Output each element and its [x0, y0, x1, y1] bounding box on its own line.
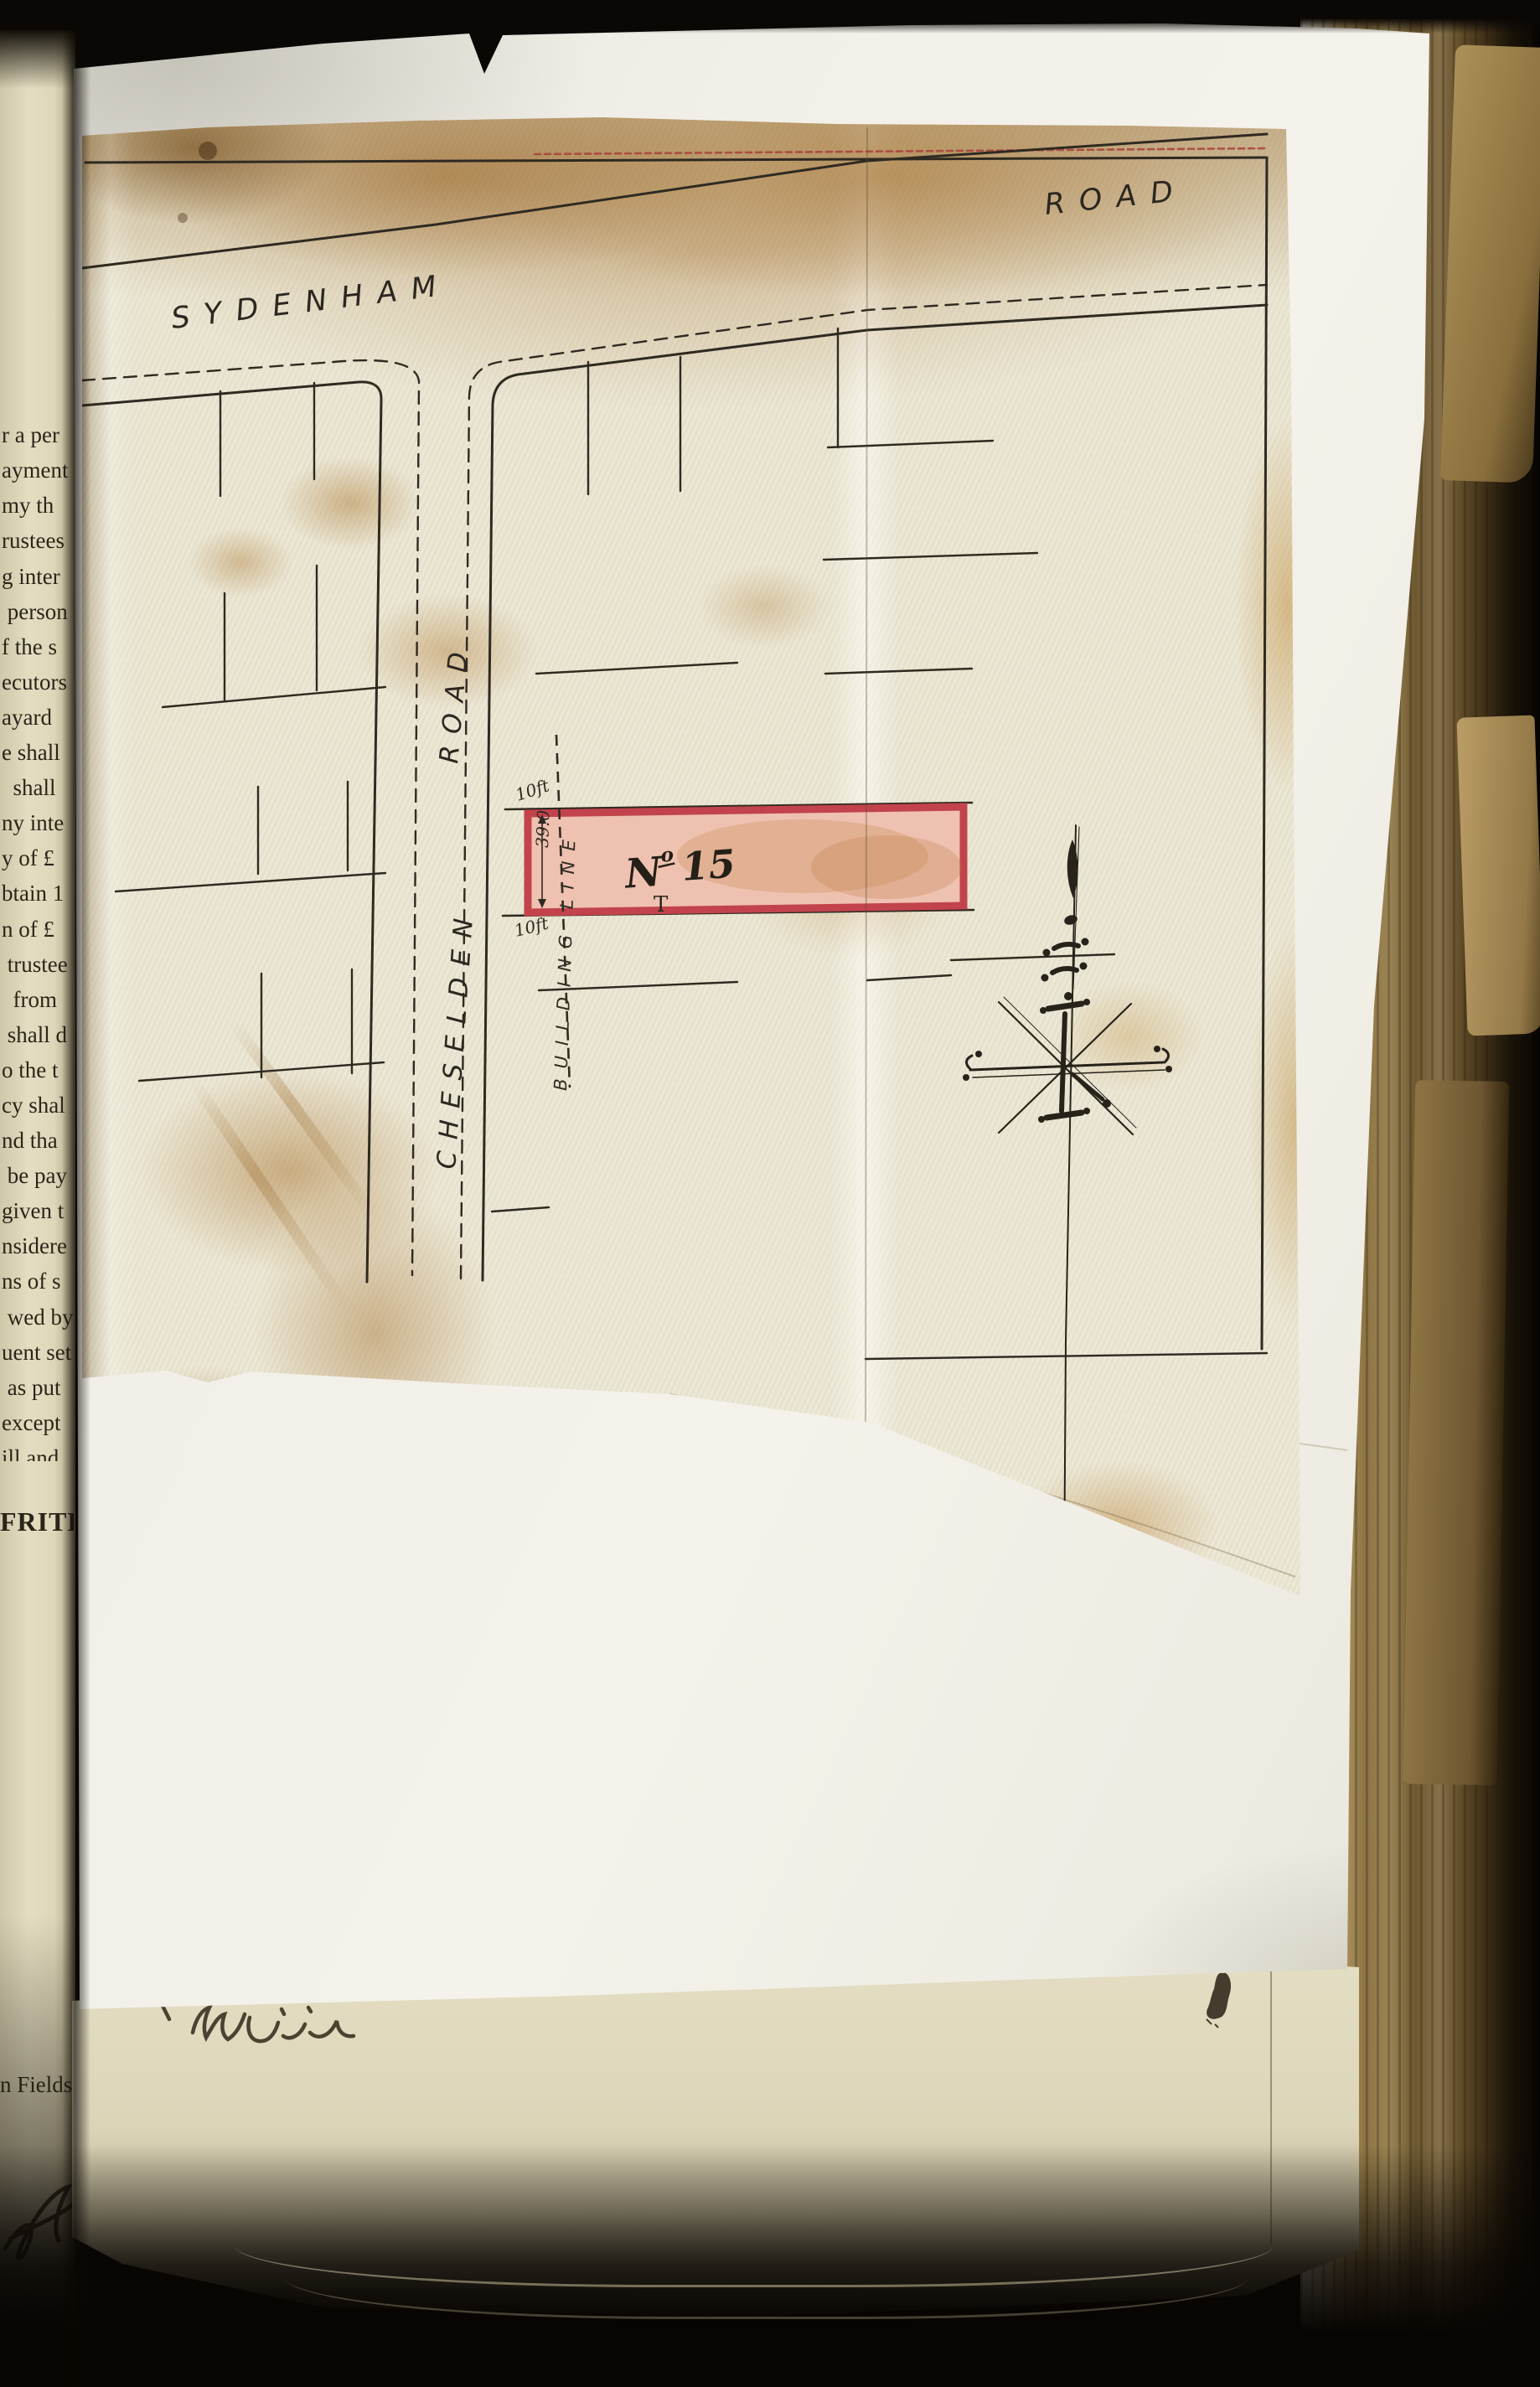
plan-border-red-dashes — [535, 148, 1267, 154]
text-line: shall — [2, 770, 56, 805]
cheselden-road-label-suffix: ROAD — [434, 639, 475, 765]
text-line: e shall — [2, 735, 60, 770]
cheselden-road-label: CHESELDEN — [432, 906, 480, 1170]
sydenham-road-label-suffix: ROAD — [1043, 173, 1189, 222]
sydenham-road-label: SYDENHAM — [169, 268, 452, 336]
gutter-shadow — [62, 0, 90, 2387]
text-line: ayment — [2, 452, 68, 488]
text-line: ecutors — [2, 664, 67, 700]
sydenham-building-line-east — [461, 285, 1267, 1279]
text-line: nsidere — [2, 1228, 67, 1263]
plot15-stain — [811, 835, 962, 899]
text-line: trustee — [2, 947, 68, 982]
text-line: ill and — [2, 1440, 59, 1461]
text-line: cy shal — [2, 1088, 65, 1123]
ink-blot — [1202, 1969, 1243, 2036]
text-line: ns of s — [2, 1263, 61, 1299]
text-line: shall d — [2, 1017, 67, 1052]
dark-spot — [199, 142, 217, 160]
plot-division-lines-west — [116, 383, 385, 1081]
text-line: o the t — [2, 1052, 59, 1088]
text-line: my th — [2, 488, 54, 523]
svg-text:15: 15 — [680, 840, 737, 889]
text-line: from — [2, 982, 57, 1017]
text-line: r a per — [2, 417, 59, 452]
dark-spot — [178, 213, 188, 223]
plan-border-top — [85, 158, 1267, 163]
text-line: as put — [2, 1370, 61, 1405]
text-line: nd tha — [2, 1123, 58, 1158]
handwriting-will — [156, 1994, 374, 2078]
compass-north-arrow — [963, 825, 1172, 1586]
torn-page-flap — [1440, 44, 1540, 483]
tee-mark: T — [654, 892, 669, 917]
text-line: uent set — [2, 1335, 71, 1370]
text-line: except — [2, 1405, 60, 1440]
frontage-label-bottom: 10ft — [512, 912, 550, 940]
fore-edge-arc — [285, 2235, 1248, 2319]
top-shadow — [0, 0, 1540, 34]
fold-crease — [866, 127, 867, 1423]
torn-page-flap — [1403, 1080, 1510, 1785]
text-line: person — [2, 594, 68, 629]
text-line: ayard — [2, 700, 52, 735]
frontage-east-of-cheselden — [483, 305, 1267, 1280]
svg-text:N: N — [622, 848, 665, 897]
depth-label: 39:0 — [532, 809, 554, 848]
text-line: given t — [2, 1193, 64, 1228]
text-line: btain 1 — [2, 876, 64, 911]
text-line: f the s — [2, 629, 57, 664]
torn-page-flap — [1456, 715, 1540, 1036]
frontage-label-top: 10ft — [513, 775, 552, 805]
archive-book-photograph: r a per ayment my th rustees g inter per… — [0, 0, 1540, 2387]
text-line: rustees — [2, 523, 65, 558]
text-line: y of £ — [2, 840, 54, 876]
frontage-west-of-cheselden — [82, 382, 381, 1282]
text-line: be pay — [2, 1158, 67, 1193]
plan-border-right — [1262, 158, 1267, 1349]
text-line: ny inte — [2, 805, 64, 840]
text-line: g inter — [2, 559, 60, 594]
text-line: n of £ — [2, 912, 54, 947]
